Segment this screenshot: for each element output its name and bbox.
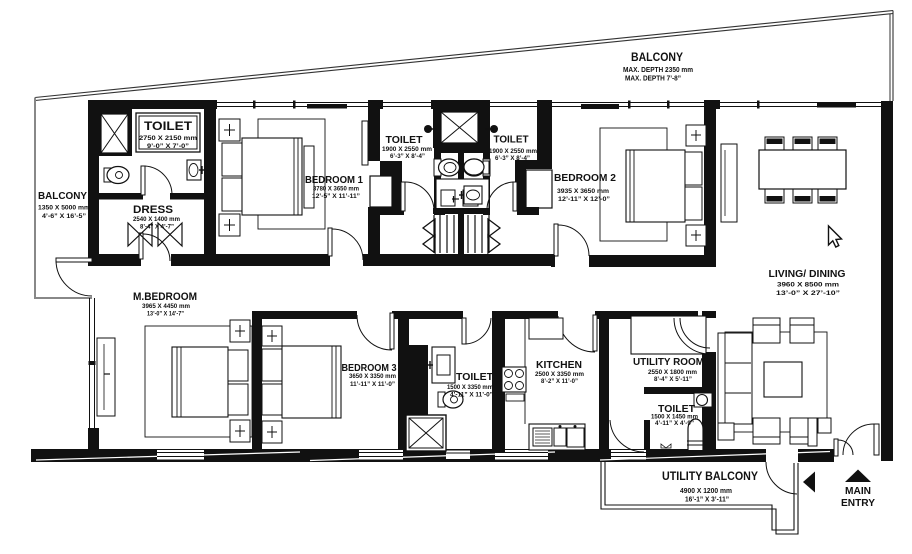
svg-text:16’-1” X 3’-11”: 16’-1” X 3’-11” xyxy=(685,497,729,504)
svg-text:TOILET: TOILET xyxy=(386,134,424,146)
svg-text:13’-0” X 27’-10”: 13’-0” X 27’-10” xyxy=(776,290,840,297)
svg-text:12’-5” X 11’-11”: 12’-5” X 11’-11” xyxy=(312,193,360,200)
svg-text:6’-3” X 8’-4”: 6’-3” X 8’-4” xyxy=(390,153,425,160)
svg-text:TOILET: TOILET xyxy=(456,371,494,383)
svg-text:8’-2” X 11’-0”: 8’-2” X 11’-0” xyxy=(541,378,578,385)
svg-text:LIVING/ DINING: LIVING/ DINING xyxy=(769,268,846,280)
svg-text:3780 X 3650 mm: 3780 X 3650 mm xyxy=(313,186,359,193)
svg-text:12’-11” X 12’-0”: 12’-11” X 12’-0” xyxy=(558,196,610,203)
svg-text:4900 X 1200 mm: 4900 X 1200 mm xyxy=(680,488,732,495)
svg-text:11’-11” X 11’-0”: 11’-11” X 11’-0” xyxy=(350,381,395,388)
svg-text:9’-0” X 7’-0”: 9’-0” X 7’-0” xyxy=(147,143,189,150)
svg-text:M.BEDROOM: M.BEDROOM xyxy=(133,291,197,303)
svg-text:4’-11” X 4’-9”: 4’-11” X 4’-9” xyxy=(655,420,694,427)
svg-text:KITCHEN: KITCHEN xyxy=(536,359,582,371)
svg-text:3650 X 3350 mm: 3650 X 3350 mm xyxy=(349,373,396,380)
svg-text:1350 X 5000 mm: 1350 X 5000 mm xyxy=(38,205,90,212)
svg-text:TOILET: TOILET xyxy=(494,134,530,146)
svg-text:1900 X 2550 mm: 1900 X 2550 mm xyxy=(489,148,537,155)
svg-text:4’-11” X 11’-0”: 4’-11” X 11’-0” xyxy=(450,392,493,399)
svg-text:DRESS: DRESS xyxy=(133,204,173,216)
svg-text:BALCONY: BALCONY xyxy=(38,190,87,202)
svg-text:ENTRY: ENTRY xyxy=(841,497,875,509)
svg-text:3935 X 3650 mm: 3935 X 3650 mm xyxy=(557,188,609,195)
svg-text:UTILITY BALCONY: UTILITY BALCONY xyxy=(662,469,758,483)
svg-text:2500 X 3350 mm: 2500 X 3350 mm xyxy=(535,371,584,378)
svg-text:MAX. DEPTH 7’-8”: MAX. DEPTH 7’-8” xyxy=(625,74,681,83)
svg-text:4’-6” X 16’-5”: 4’-6” X 16’-5” xyxy=(42,213,86,220)
svg-text:8’-4” X 5’-11”: 8’-4” X 5’-11” xyxy=(654,376,692,383)
svg-text:BEDROOM 1: BEDROOM 1 xyxy=(305,174,363,186)
svg-text:2540 X 1400 mm: 2540 X 1400 mm xyxy=(133,216,180,223)
svg-text:13’-0” X 14’-7”: 13’-0” X 14’-7” xyxy=(147,311,184,318)
svg-text:UTILITY ROOM: UTILITY ROOM xyxy=(633,356,704,368)
svg-text:6’-3” X 8’-4”: 6’-3” X 8’-4” xyxy=(495,155,530,162)
svg-text:2750 X 2150 mm: 2750 X 2150 mm xyxy=(139,135,197,142)
svg-text:TOILET: TOILET xyxy=(144,119,193,133)
svg-text:BALCONY: BALCONY xyxy=(631,50,683,64)
svg-text:1900 X 2550 mm: 1900 X 2550 mm xyxy=(382,146,432,153)
svg-text:8’-4” X 4’-7”: 8’-4” X 4’-7” xyxy=(140,224,174,231)
svg-text:MAIN: MAIN xyxy=(845,485,871,497)
svg-text:2550 X 1800 mm: 2550 X 1800 mm xyxy=(648,369,697,376)
svg-text:3965 X 4450 mm: 3965 X 4450 mm xyxy=(142,303,190,310)
svg-text:3960 X 8500 mm: 3960 X 8500 mm xyxy=(777,282,839,289)
svg-text:1500 X 3350 mm: 1500 X 3350 mm xyxy=(447,384,493,391)
svg-text:BEDROOM 2: BEDROOM 2 xyxy=(554,172,616,184)
